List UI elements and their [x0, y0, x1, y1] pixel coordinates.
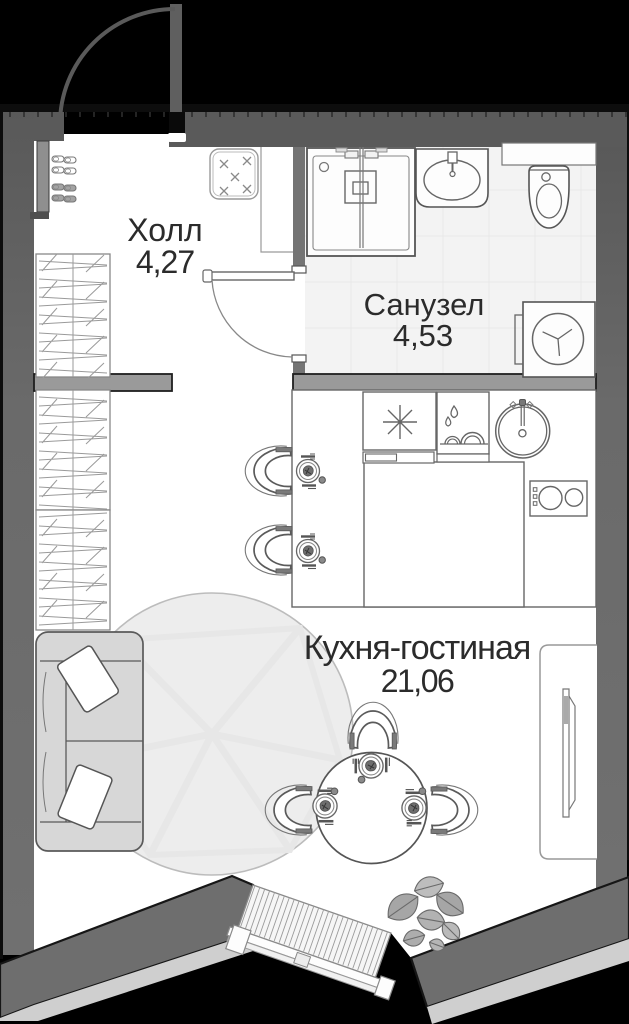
svg-text:Кухня-гостиная: Кухня-гостиная	[304, 629, 531, 667]
svg-text:Санузел: Санузел	[364, 287, 485, 322]
svg-text:4,53: 4,53	[393, 318, 453, 353]
svg-text:4,27: 4,27	[136, 244, 194, 280]
svg-text:21,06: 21,06	[381, 663, 454, 699]
svg-text:Холл: Холл	[127, 212, 202, 248]
